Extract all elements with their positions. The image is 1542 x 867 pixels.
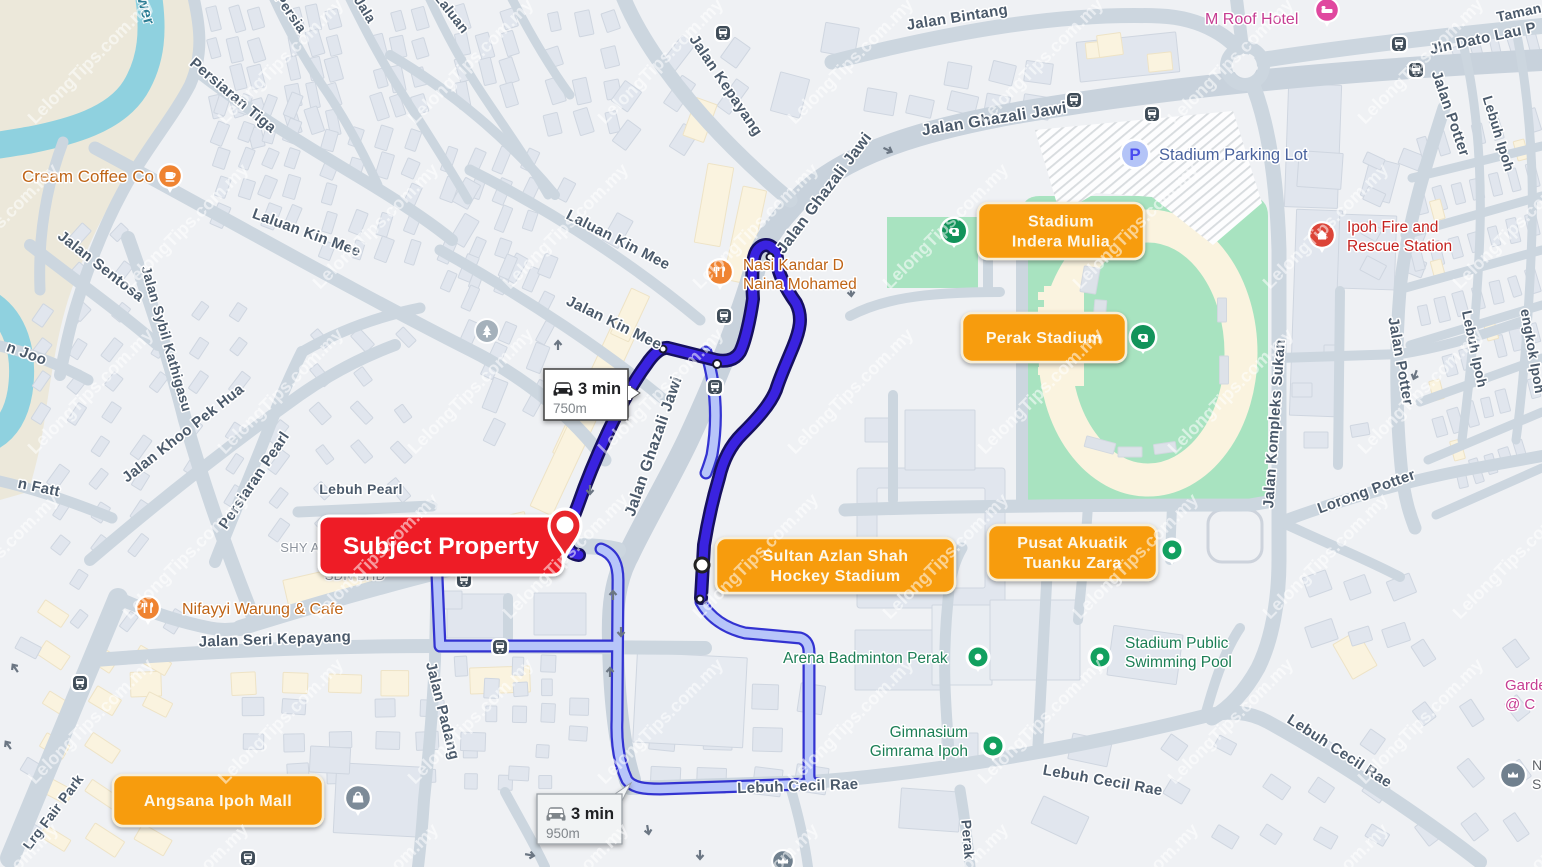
svg-text:Stadium Parking Lot: Stadium Parking Lot: [1159, 146, 1308, 164]
svg-text:Nasi Kandar D: Nasi Kandar D: [743, 257, 844, 274]
svg-text:Angsana Ipoh Mall: Angsana Ipoh Mall: [144, 793, 292, 810]
svg-text:Rescue Station: Rescue Station: [1347, 238, 1452, 255]
svg-text:Stadium Public: Stadium Public: [1125, 635, 1229, 652]
svg-text:Naina Mohamed: Naina Mohamed: [743, 276, 857, 293]
svg-text:SHY A: SHY A: [280, 540, 320, 555]
svg-text:Ipoh Fire and: Ipoh Fire and: [1347, 219, 1438, 236]
svg-text:Lebuh Pearl: Lebuh Pearl: [319, 481, 402, 497]
svg-text:Hockey Stadium: Hockey Stadium: [770, 568, 900, 585]
svg-text:Gimnasium: Gimnasium: [890, 724, 968, 741]
svg-text:Stadium: Stadium: [1028, 214, 1094, 231]
svg-text:Pusat Akuatik: Pusat Akuatik: [1017, 535, 1127, 552]
svg-text:@ C: @ C: [1505, 696, 1535, 713]
svg-text:P: P: [1129, 145, 1140, 164]
svg-text:950m: 950m: [546, 826, 580, 841]
svg-text:Sultan Azlan Shah: Sultan Azlan Shah: [763, 548, 909, 565]
svg-text:Indera Mulia: Indera Mulia: [1012, 234, 1110, 251]
svg-text:750m: 750m: [553, 401, 587, 416]
svg-text:3 min: 3 min: [578, 380, 621, 398]
svg-text:Swimming Pool: Swimming Pool: [1125, 654, 1232, 671]
svg-text:Gimrama Ipoh: Gimrama Ipoh: [870, 743, 968, 760]
svg-text:S: S: [1532, 776, 1541, 792]
svg-text:Garden: Garden: [1505, 677, 1542, 694]
svg-text:N: N: [1532, 757, 1542, 773]
svg-text:Arena Badminton Perak: Arena Badminton Perak: [783, 650, 948, 667]
svg-text:3 min: 3 min: [571, 805, 614, 823]
